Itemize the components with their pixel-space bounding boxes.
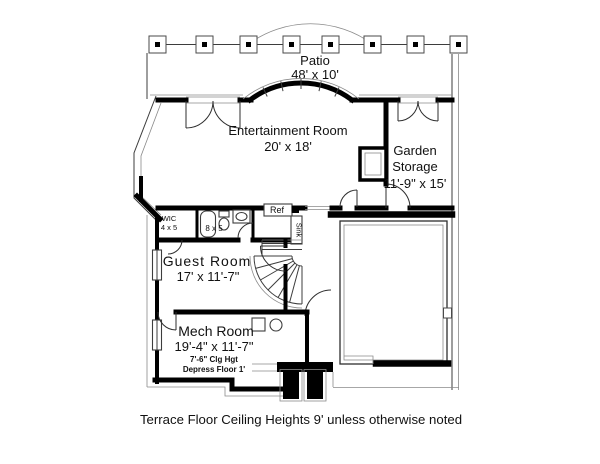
guest-room-dims: 17' x 11'-7" (177, 269, 240, 284)
ref-label: Ref (270, 205, 285, 215)
plan-caption: Terrace Floor Ceiling Heights 9' unless … (140, 412, 462, 427)
garden-storage-label-2: Storage (392, 159, 438, 174)
wic-label: WIC (162, 214, 177, 223)
guest-room-label: Guest Room (163, 253, 252, 269)
mech-room-ceiling-note: 7'-6" Clg Hgt (190, 355, 238, 364)
patio-label: Patio (300, 53, 330, 68)
patio-column (364, 36, 381, 53)
patio-column (196, 36, 213, 53)
fireplace-niche (360, 148, 386, 180)
entertainment-room-dims: 20' x 18' (264, 139, 312, 154)
patio-column (240, 36, 257, 53)
right-wall-marker (444, 308, 452, 318)
mech-room-floor-note: Depress Floor 1' (183, 365, 245, 374)
foundation-pier (304, 370, 326, 402)
bay-window-arc (243, 78, 359, 100)
range-icon (292, 206, 300, 214)
patio-column (149, 36, 166, 53)
bath-sink (233, 210, 250, 223)
terrace-floor-plan: Patio 48' x 10' (0, 0, 600, 464)
patio-column (407, 36, 424, 53)
patio-column (450, 36, 467, 53)
bath-dims: 8 x 5 (205, 224, 223, 233)
patio: Patio 48' x 10' (147, 24, 467, 99)
water-heater (252, 318, 282, 331)
right-room (331, 215, 452, 365)
right-exterior-wall (333, 54, 459, 390)
floor-plan-page: Patio 48' x 10' (0, 0, 600, 464)
mech-room-label: Mech Room (178, 323, 253, 339)
entertainment-room-label: Entertainment Room (228, 123, 347, 138)
wic-dims: 4 x 5 (161, 223, 177, 232)
room-labels: Entertainment Room 20' x 18' Garden Stor… (163, 123, 447, 284)
garden-storage-label-1: Garden (393, 143, 436, 158)
window (153, 320, 162, 350)
bath-door (238, 223, 253, 238)
patio-column (283, 36, 300, 53)
curved-staircase (250, 240, 331, 316)
garden-storage-french-doors (398, 101, 438, 121)
hall-door (340, 190, 357, 207)
mech-room-dims: 19'-4" x 11'-7" (175, 339, 254, 354)
foundation-pier (280, 370, 302, 402)
garden-storage-dims: 11'-9" x 15' (384, 176, 447, 191)
patio-column (322, 36, 339, 53)
top-exterior-wall (150, 78, 452, 128)
sink-label: Sink (295, 223, 304, 238)
wic-bath: WIC 4 x 5 8 x 5 (158, 210, 288, 254)
window (153, 250, 162, 280)
